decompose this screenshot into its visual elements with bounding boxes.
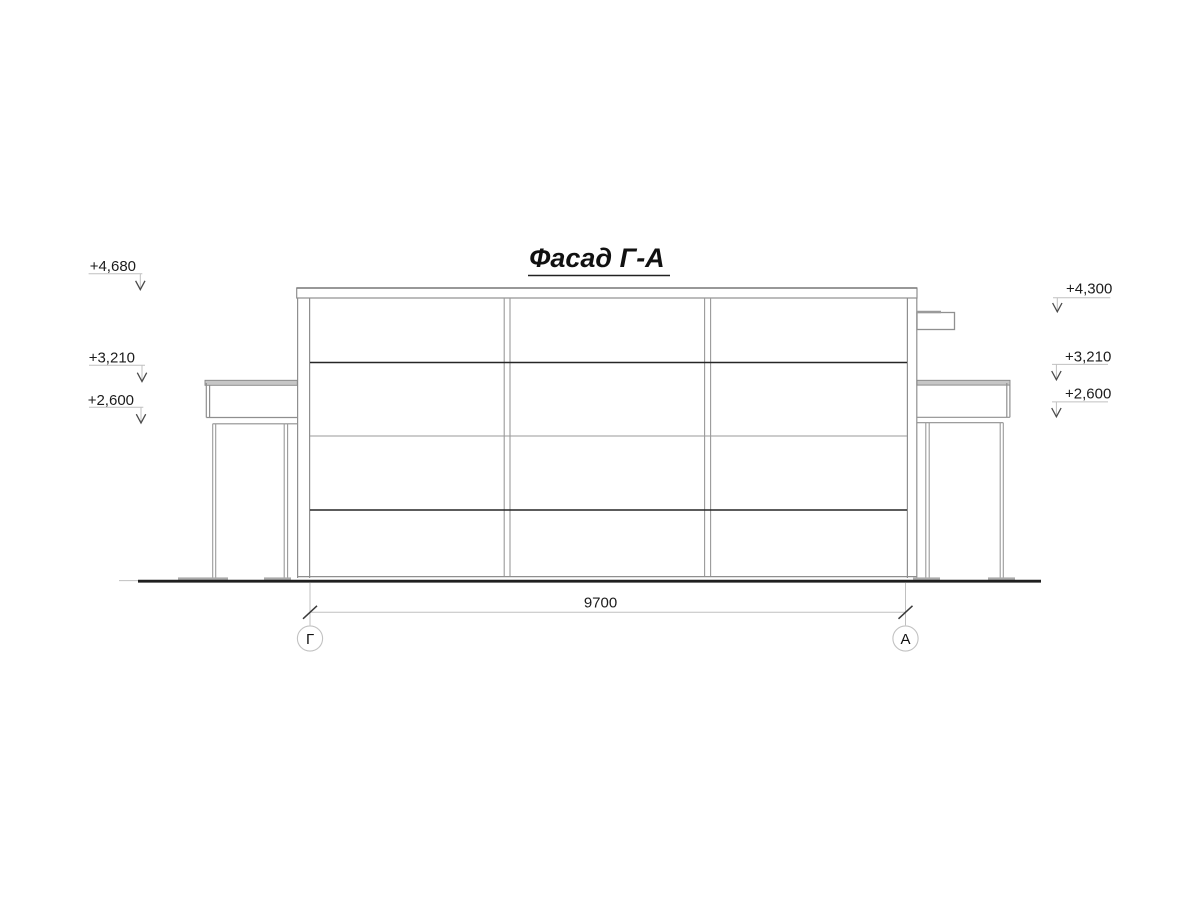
axis-bubble-right: А bbox=[893, 626, 918, 651]
left-canopy-post-2 bbox=[284, 424, 287, 578]
facade-right-wall bbox=[907, 298, 916, 578]
elevation-label: +3,210 bbox=[89, 350, 135, 367]
right-canopy bbox=[913, 380, 1015, 580]
dimension-9700: 9700 bbox=[303, 583, 913, 625]
left-canopy-post-1 bbox=[213, 424, 216, 578]
right-canopy-underside bbox=[917, 417, 1010, 422]
ground bbox=[119, 581, 1041, 582]
elevation-marker-left-4680: +4,680 bbox=[89, 258, 145, 290]
elevation-marker-left-3210: +3,210 bbox=[89, 350, 147, 382]
dimension-value: 9700 bbox=[584, 595, 617, 612]
drawing-sheet: Фасад Г-А bbox=[0, 0, 1200, 900]
axis-label-right: А bbox=[900, 631, 910, 648]
right-canopy-edge bbox=[1007, 383, 1010, 417]
right-canopy-fascia bbox=[917, 380, 1010, 385]
elevation-label: +4,680 bbox=[90, 258, 136, 275]
right-canopy-post-1 bbox=[926, 423, 929, 578]
elevation-label: +3,210 bbox=[1065, 349, 1111, 366]
elevation-label: +2,600 bbox=[1065, 386, 1111, 403]
axis-label-left: Г bbox=[306, 631, 314, 648]
right-canopy-post-2 bbox=[1000, 423, 1003, 578]
facade-mullion-1 bbox=[504, 298, 510, 576]
elevation-marker-right-3210: +3,210 bbox=[1052, 349, 1112, 380]
left-canopy bbox=[178, 380, 298, 580]
facade-transoms bbox=[298, 363, 917, 577]
drawing-title-block: Фасад Г-А bbox=[528, 243, 670, 276]
elevation-label: +4,300 bbox=[1066, 281, 1112, 298]
left-canopy-fascia bbox=[205, 380, 297, 385]
facade-mullion-2 bbox=[705, 298, 711, 576]
facade-body bbox=[297, 288, 955, 578]
facade-left-wall bbox=[298, 298, 310, 578]
elevation-marker-right-2600: +2,600 bbox=[1052, 386, 1112, 417]
cornice-band bbox=[297, 288, 917, 298]
left-canopy-underside bbox=[206, 418, 297, 424]
left-canopy-edge bbox=[206, 383, 209, 418]
elevation-marker-left-2600: +2,600 bbox=[88, 392, 146, 423]
axis-bubble-left: Г bbox=[297, 626, 322, 651]
roof-outlet-box bbox=[917, 312, 955, 330]
drawing-title: Фасад Г-А bbox=[529, 243, 664, 273]
facade-elevation-drawing: Фасад Г-А bbox=[0, 0, 1200, 900]
elevation-marker-right-4300: +4,300 bbox=[1053, 281, 1113, 312]
elevation-label: +2,600 bbox=[88, 392, 134, 409]
